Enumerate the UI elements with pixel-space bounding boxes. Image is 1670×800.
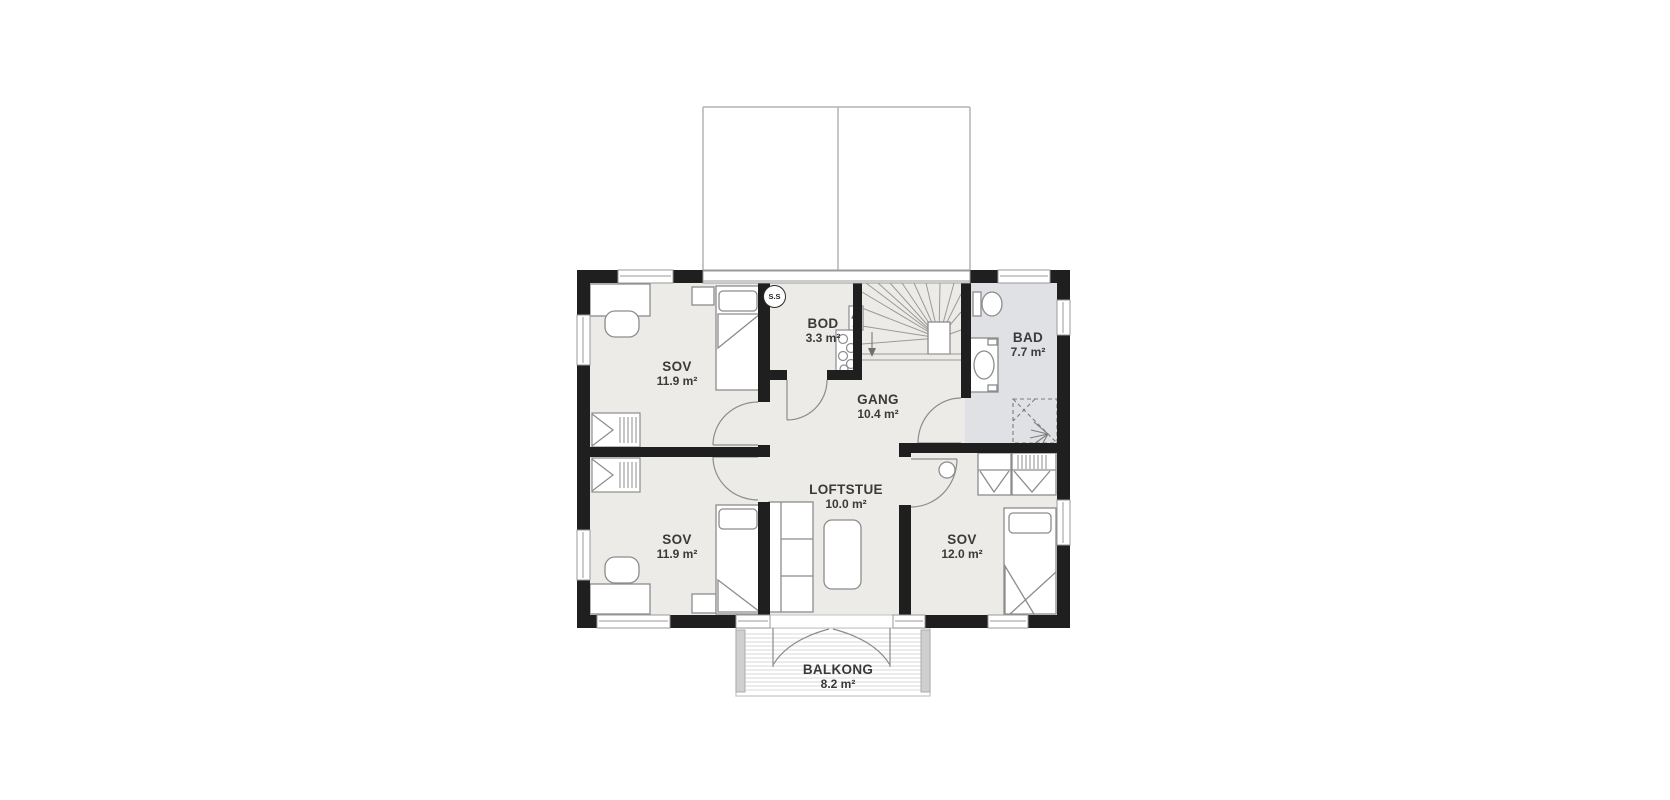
- floor-plan-drawing: [0, 0, 1670, 800]
- sofa-icon: [769, 502, 813, 612]
- floor-plan-page: SOV 11.9 m² SOV 11.9 m² SOV 12.0 m² BAD …: [0, 0, 1670, 800]
- desk-chair-icon: [605, 311, 639, 337]
- toilet-icon: [973, 292, 1002, 316]
- dormer-window-band: [703, 270, 970, 283]
- coffee-table-icon: [824, 520, 861, 589]
- washbasin-icon: [970, 338, 998, 392]
- dormer-outline: [703, 107, 970, 270]
- shaft-marker: S.S: [763, 285, 786, 308]
- balcony-door-threshold: [770, 615, 893, 628]
- ceiling-lamp-icon: [939, 462, 955, 478]
- wardrobe-icon: [978, 453, 1011, 495]
- desk-chair-icon: [605, 557, 639, 583]
- balcony-deck: [736, 628, 930, 696]
